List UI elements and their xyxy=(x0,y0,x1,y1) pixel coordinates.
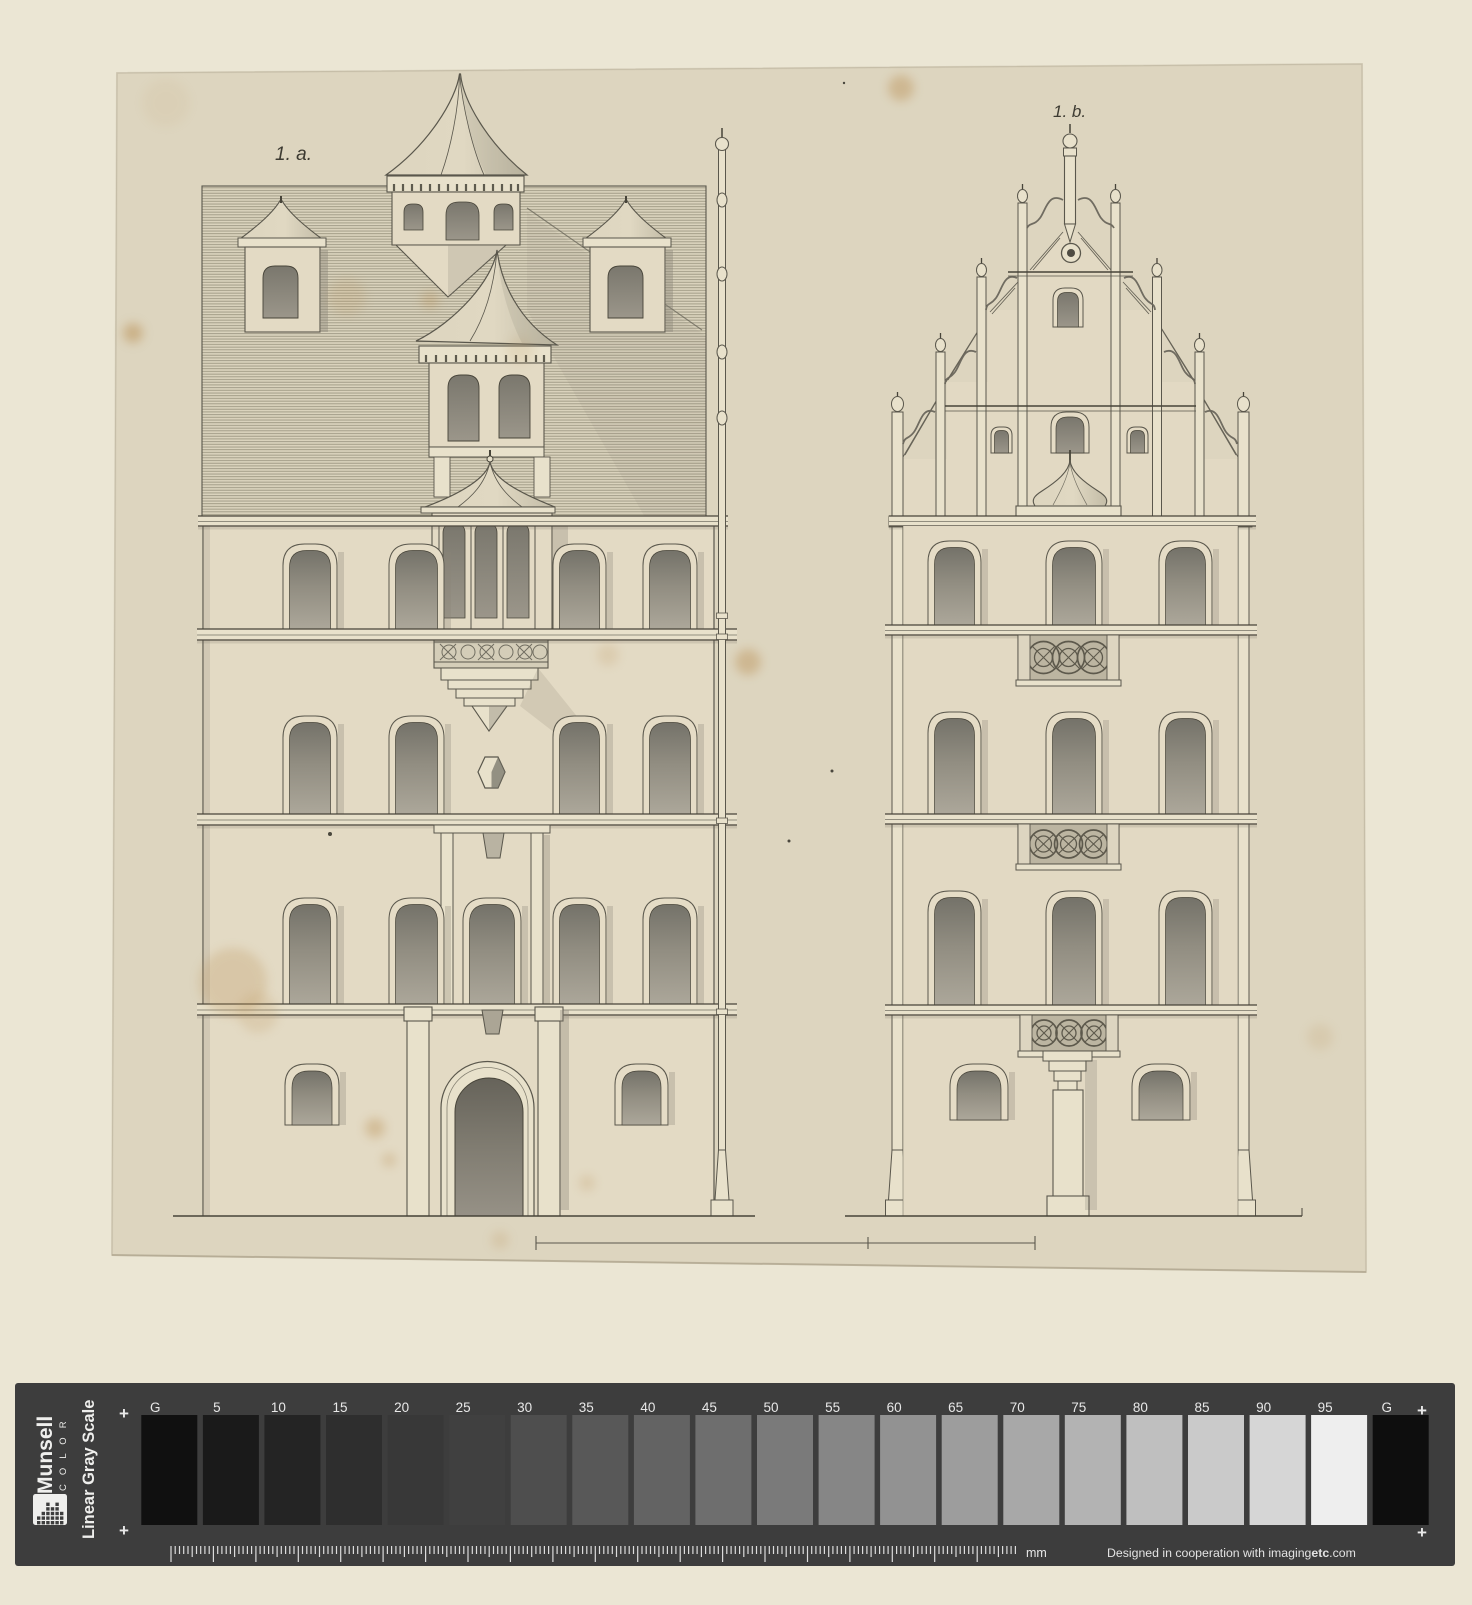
svg-text:75: 75 xyxy=(1071,1400,1086,1415)
svg-text:+: + xyxy=(119,1404,129,1423)
svg-text:1. b.: 1. b. xyxy=(1053,102,1086,121)
svg-text:90: 90 xyxy=(1256,1400,1271,1415)
svg-text:20: 20 xyxy=(394,1400,409,1415)
svg-text:95: 95 xyxy=(1318,1400,1333,1415)
svg-text:70: 70 xyxy=(1010,1400,1025,1415)
svg-text:50: 50 xyxy=(763,1400,778,1415)
svg-text:85: 85 xyxy=(1194,1400,1209,1415)
svg-text:C O L O R: C O L O R xyxy=(58,1418,69,1491)
svg-text:55: 55 xyxy=(825,1400,840,1415)
svg-text:80: 80 xyxy=(1133,1400,1148,1415)
svg-text:mm: mm xyxy=(1026,1546,1047,1560)
svg-text:+: + xyxy=(1417,1523,1427,1542)
svg-text:65: 65 xyxy=(948,1400,963,1415)
svg-text:Linear Gray Scale: Linear Gray Scale xyxy=(80,1400,98,1539)
svg-text:45: 45 xyxy=(702,1400,717,1415)
svg-text:Munsell: Munsell xyxy=(34,1416,57,1494)
svg-text:5: 5 xyxy=(213,1400,221,1415)
svg-text:30: 30 xyxy=(517,1400,532,1415)
svg-text:1. a.: 1. a. xyxy=(275,144,312,165)
svg-text:G: G xyxy=(150,1400,161,1415)
svg-text:Designed in cooperation with i: Designed in cooperation with imagingetc.… xyxy=(1107,1546,1356,1560)
svg-text:+: + xyxy=(119,1521,129,1540)
svg-text:25: 25 xyxy=(456,1400,471,1415)
svg-text:35: 35 xyxy=(579,1400,594,1415)
svg-text:40: 40 xyxy=(640,1400,655,1415)
svg-text:10: 10 xyxy=(271,1400,286,1415)
svg-text:60: 60 xyxy=(887,1400,902,1415)
svg-text:15: 15 xyxy=(332,1400,347,1415)
svg-text:G: G xyxy=(1381,1400,1392,1415)
